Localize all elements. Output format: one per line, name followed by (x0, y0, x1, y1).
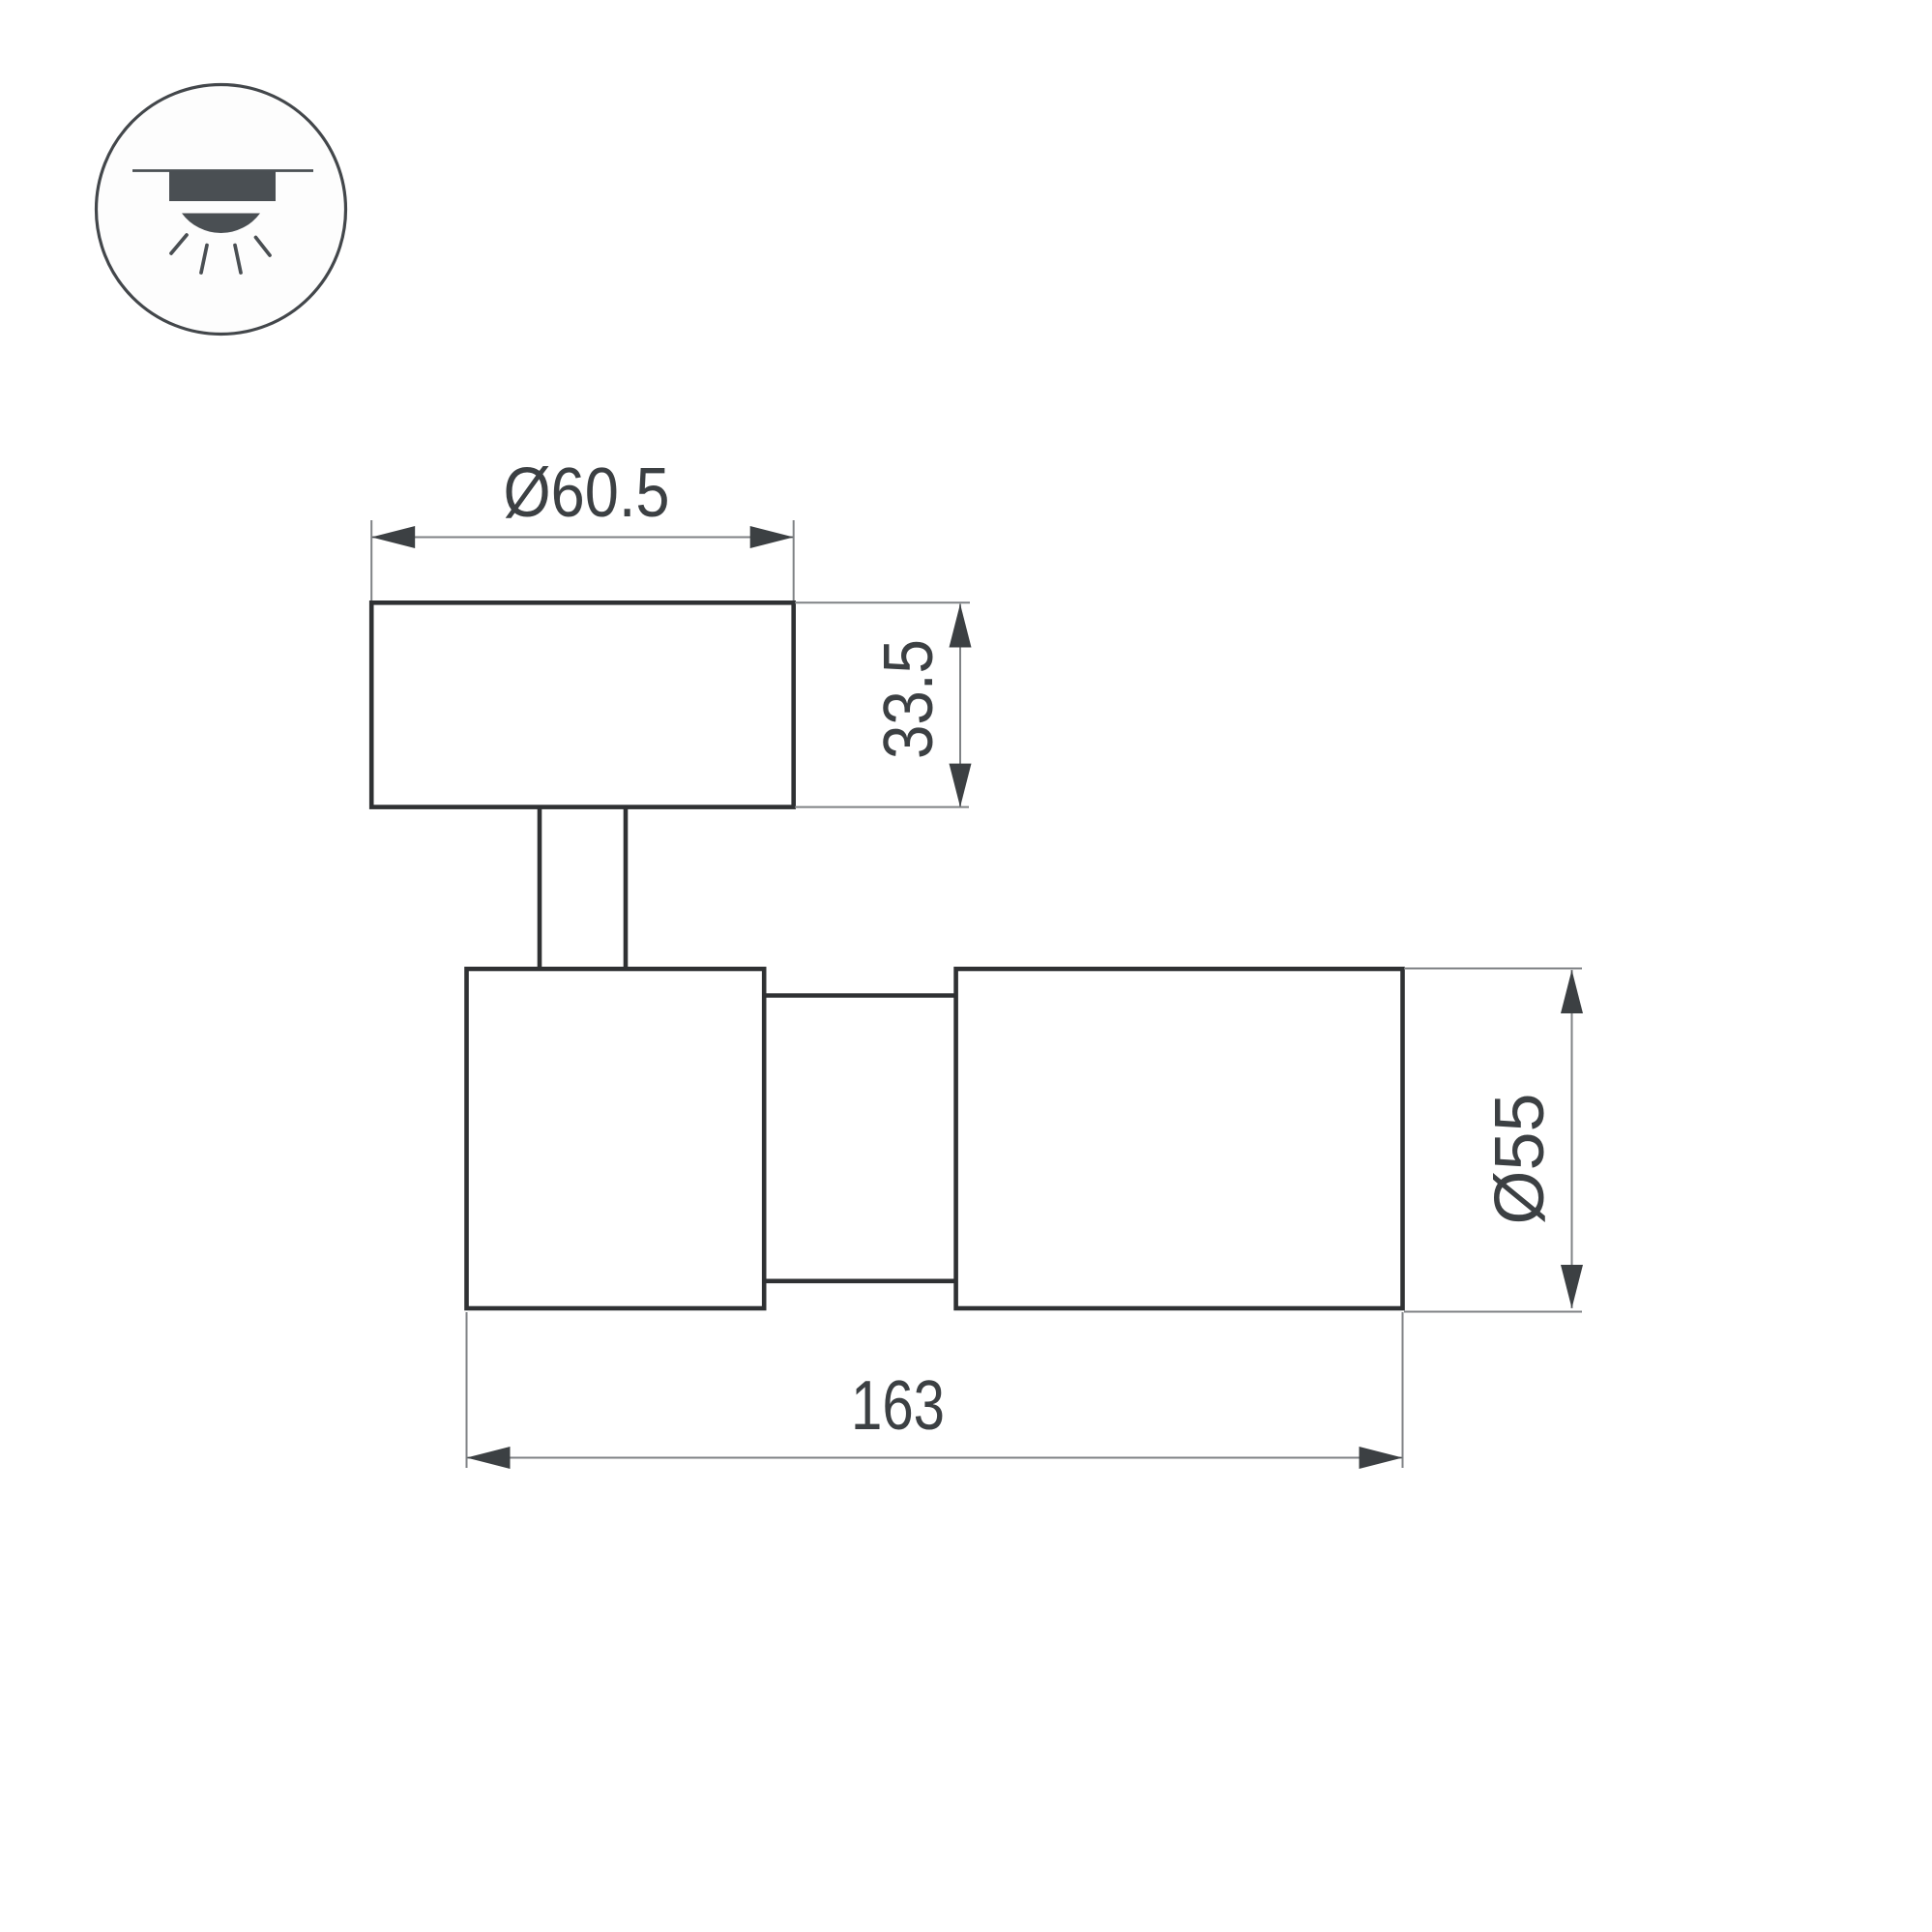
svg-text:Ø60.5: Ø60.5 (504, 454, 670, 532)
svg-text:33.5: 33.5 (870, 639, 948, 759)
svg-text:Ø55: Ø55 (1481, 1094, 1559, 1225)
svg-text:163: 163 (851, 1367, 945, 1445)
